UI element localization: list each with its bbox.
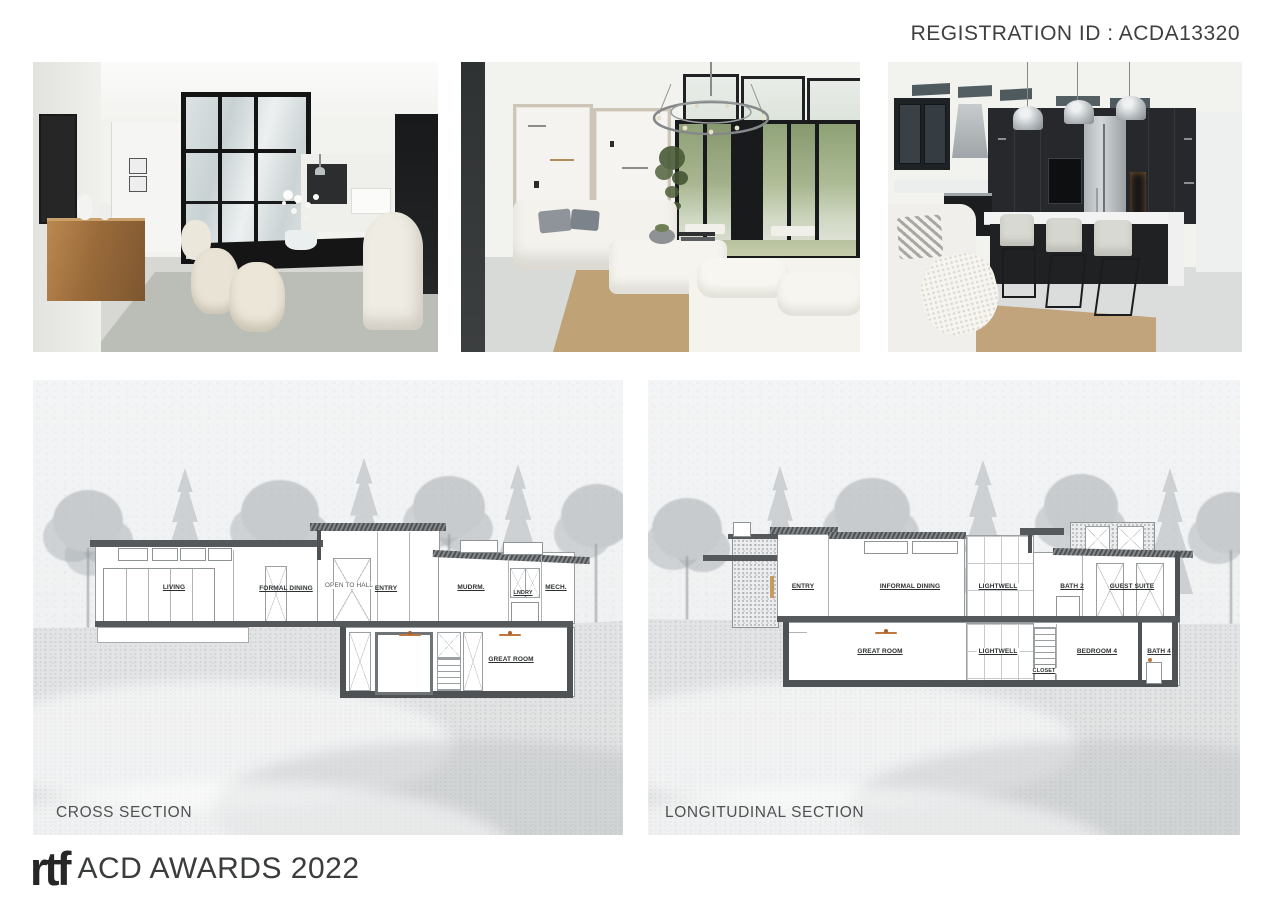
glass-line <box>377 532 378 622</box>
barstool-seat <box>1046 218 1082 252</box>
pendant-stem <box>1027 62 1028 108</box>
tower-roof-slab <box>310 523 446 531</box>
registration-id: REGISTRATION ID : ACDA13320 <box>911 22 1240 46</box>
awards-title: ACD AWARDS 2022 <box>77 852 359 886</box>
room-label: LIVING <box>163 584 185 591</box>
folding-glass-doors <box>103 568 215 623</box>
sofa-cushion <box>777 272 860 316</box>
dining-chair <box>229 262 285 332</box>
room-label: LIGHTWELL <box>977 583 1020 590</box>
art-mark <box>534 181 539 188</box>
fridge-handle <box>1103 124 1105 216</box>
glass-pane <box>924 104 946 164</box>
pendant-stem <box>1077 62 1078 102</box>
art-mark <box>622 167 648 169</box>
bottom-slab <box>783 680 1178 687</box>
kitchen-cabinet <box>307 164 347 204</box>
wall-artwork <box>39 114 77 224</box>
open-to-hall-panel <box>333 558 371 623</box>
fridge <box>1084 116 1126 224</box>
right-wall <box>1196 112 1242 272</box>
sliding-glass-door <box>375 632 433 695</box>
mullion <box>186 149 296 153</box>
counter <box>894 180 988 193</box>
room-label: GUEST SUITE <box>1110 583 1154 590</box>
kitchen-island <box>351 188 391 214</box>
stairs <box>437 658 461 691</box>
sofa-right <box>689 258 860 352</box>
photo-living-room <box>461 62 860 352</box>
dining-door <box>265 566 287 623</box>
longitudinal-section-panel: ENTRY INFORMAL DINING LIGHTWELL BATH 2 G… <box>648 380 1240 835</box>
guest-door <box>1096 563 1124 618</box>
room-label: FORMAL DINING <box>259 585 313 592</box>
clerestory <box>912 541 958 554</box>
ledge-slab <box>703 555 777 561</box>
room-label: BEDROOM 4 <box>1077 648 1117 655</box>
entry-door-accent <box>770 576 774 598</box>
pendant-dome <box>1116 96 1146 120</box>
pendant-dome <box>1013 106 1043 130</box>
clerestory <box>864 541 908 554</box>
cabinet-seam <box>1174 108 1175 224</box>
cabinet-seam <box>1148 108 1149 224</box>
door-pane <box>819 124 856 256</box>
range-hood <box>952 104 988 158</box>
roof-slab <box>90 540 323 547</box>
vase <box>77 194 93 220</box>
barstool-frame <box>1002 248 1036 298</box>
wall-cut <box>317 530 321 560</box>
succulent <box>655 224 669 232</box>
stair-door <box>437 632 461 658</box>
room-label: MUDRM. <box>457 584 484 591</box>
room-label: BATH 2 <box>1060 583 1084 590</box>
clerestory-window <box>912 83 950 96</box>
art-mark <box>550 159 574 161</box>
pendant-stem <box>1129 62 1130 98</box>
rtf-logo-mark: rtf <box>30 845 68 892</box>
pendant-light <box>315 167 325 175</box>
cabinet-handle <box>998 138 1006 140</box>
room-label: INFORMAL DINING <box>880 583 940 590</box>
floor-slab <box>777 616 1180 622</box>
barstool-frame <box>1045 254 1087 308</box>
dining-roof-slab <box>828 532 966 539</box>
hall-frame <box>129 176 147 192</box>
floor-slab <box>95 621 573 627</box>
fiddle-leaf-plant <box>659 146 685 170</box>
barstool-frame <box>1094 258 1140 316</box>
wall-line <box>828 536 829 618</box>
ceiling-fan-icon <box>875 628 897 635</box>
sofa-cushion <box>697 258 789 298</box>
lower-door <box>349 632 371 691</box>
glass-cabinet <box>894 98 950 170</box>
room-label: ENTRY <box>792 583 814 590</box>
cabinet-handle <box>1184 182 1194 184</box>
room-label: OPEN TO HALL <box>323 582 375 589</box>
lower-door <box>463 632 483 691</box>
wall-cut <box>340 627 346 695</box>
barstool-seat <box>1000 214 1034 246</box>
book-stack <box>679 232 715 236</box>
longitudinal-section-caption: LONGITUDINAL SECTION <box>665 804 864 822</box>
monitor-panel <box>1117 526 1144 552</box>
wall-line <box>541 556 542 622</box>
mullion <box>218 97 222 249</box>
planter-pot <box>285 230 317 250</box>
room-label: CLOSET <box>1031 668 1058 674</box>
wall-cut <box>1175 552 1180 618</box>
wall-cut <box>1172 622 1178 684</box>
room-label: LNDRY <box>511 590 534 596</box>
clerestory-window <box>958 85 992 98</box>
host-chair <box>363 212 423 330</box>
clerestory <box>152 548 178 561</box>
chimney-vent <box>733 522 751 537</box>
stair-tower-cap <box>1020 528 1064 535</box>
clerestory <box>503 542 543 555</box>
vase <box>99 202 111 220</box>
toilet-fixture <box>1146 662 1162 684</box>
clerestory <box>118 548 148 561</box>
guest-door <box>1136 563 1164 618</box>
footer-logo: rtf ACD AWARDS 2022 <box>30 846 360 891</box>
footing <box>97 627 249 643</box>
mullion <box>186 201 296 204</box>
barstool-seat <box>1094 220 1132 256</box>
fireplace-wall <box>461 62 485 352</box>
cross-section-caption: CROSS SECTION <box>56 804 192 822</box>
ring-chandelier <box>641 62 781 144</box>
laundry-unit <box>511 602 539 623</box>
clerestory <box>180 548 206 561</box>
patio-lounge <box>771 226 815 236</box>
pendant-light <box>319 154 321 168</box>
clerestory <box>208 548 232 561</box>
orchid-flowers <box>283 190 293 200</box>
ceiling-fan-icon <box>499 630 521 637</box>
room-label: MECH. <box>545 584 566 591</box>
pendant-dome <box>1064 100 1094 124</box>
photo-dining-room <box>33 62 438 352</box>
soffit-line <box>789 632 807 633</box>
wall-line <box>1056 624 1057 684</box>
lightwell-glass-upper <box>966 535 1034 621</box>
room-label: GREAT ROOM <box>488 656 533 663</box>
fixture-accent <box>1148 658 1152 662</box>
art-mark <box>610 141 614 147</box>
mullion <box>254 97 258 249</box>
hall-frame <box>129 158 147 174</box>
wall-cut <box>1138 622 1142 684</box>
wall-cut <box>567 627 573 695</box>
throw-pillow <box>538 208 572 233</box>
presentation-board: REGISTRATION ID : ACDA13320 <box>0 0 1273 900</box>
door-pane <box>791 124 815 256</box>
clerestory <box>460 540 498 553</box>
room-label: ENTRY <box>375 585 397 592</box>
room-label: BATH 4 <box>1147 648 1171 655</box>
ceiling-fan-icon <box>399 630 421 637</box>
wall-ovens <box>1048 158 1082 204</box>
wood-credenza <box>47 218 145 301</box>
striped-pillow <box>897 215 944 260</box>
art-mark <box>528 125 546 127</box>
glass-pane <box>899 104 921 164</box>
island-waterfall <box>1168 212 1184 286</box>
faucet <box>1096 188 1098 214</box>
book-stack <box>681 237 715 241</box>
glass-line <box>409 532 410 622</box>
clerestory-window <box>807 78 860 126</box>
wall-line <box>508 556 509 622</box>
room-label: GREAT ROOM <box>857 648 902 655</box>
cross-section-panel: LIVING FORMAL DINING OPEN TO HALL ENTRY … <box>33 380 623 835</box>
throw-pillow <box>570 209 600 231</box>
cabinet-handle <box>1184 138 1192 140</box>
room-label: LIGHTWELL <box>977 648 1020 655</box>
wall-line <box>233 550 234 622</box>
photo-kitchen <box>888 62 1242 352</box>
abstract-artwork <box>513 104 593 208</box>
wall-cut <box>1028 535 1032 553</box>
